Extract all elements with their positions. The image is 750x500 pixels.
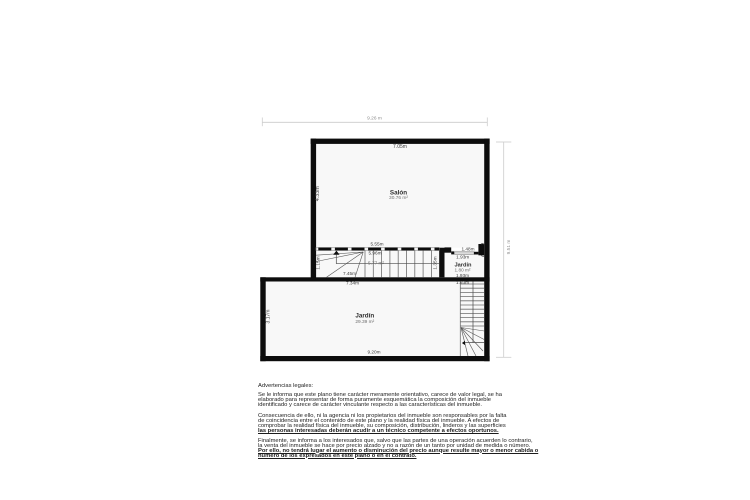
svg-text:Jardín: Jardín	[355, 313, 374, 320]
svg-text:30.76 m²: 30.76 m²	[389, 195, 408, 201]
svg-text:1.15m: 1.15m	[315, 256, 321, 269]
svg-text:1.35m: 1.35m	[432, 256, 438, 269]
svg-text:4.33m: 4.33m	[315, 186, 321, 201]
svg-text:7.05m: 7.05m	[393, 144, 407, 150]
svg-text:5.77 m²: 5.77 m²	[368, 260, 384, 265]
svg-text:1.48m: 1.48m	[461, 246, 474, 251]
svg-text:3.17m: 3.17m	[266, 310, 272, 324]
svg-text:9.51 m: 9.51 m	[506, 240, 512, 255]
svg-text:5.96m: 5.96m	[368, 250, 381, 255]
svg-text:1.80 m²: 1.80 m²	[455, 268, 471, 273]
svg-text:1.93m: 1.93m	[456, 254, 469, 259]
svg-text:5.55m: 5.55m	[370, 242, 383, 247]
svg-text:9.26 m: 9.26 m	[367, 115, 382, 121]
svg-text:29.39 m²: 29.39 m²	[355, 319, 374, 325]
svg-text:7.34m: 7.34m	[346, 280, 359, 285]
svg-text:1.93m: 1.93m	[456, 273, 469, 278]
svg-text:1.93m: 1.93m	[456, 280, 469, 285]
svg-text:9.20m: 9.20m	[367, 349, 380, 354]
svg-text:7.45m: 7.45m	[343, 271, 356, 276]
